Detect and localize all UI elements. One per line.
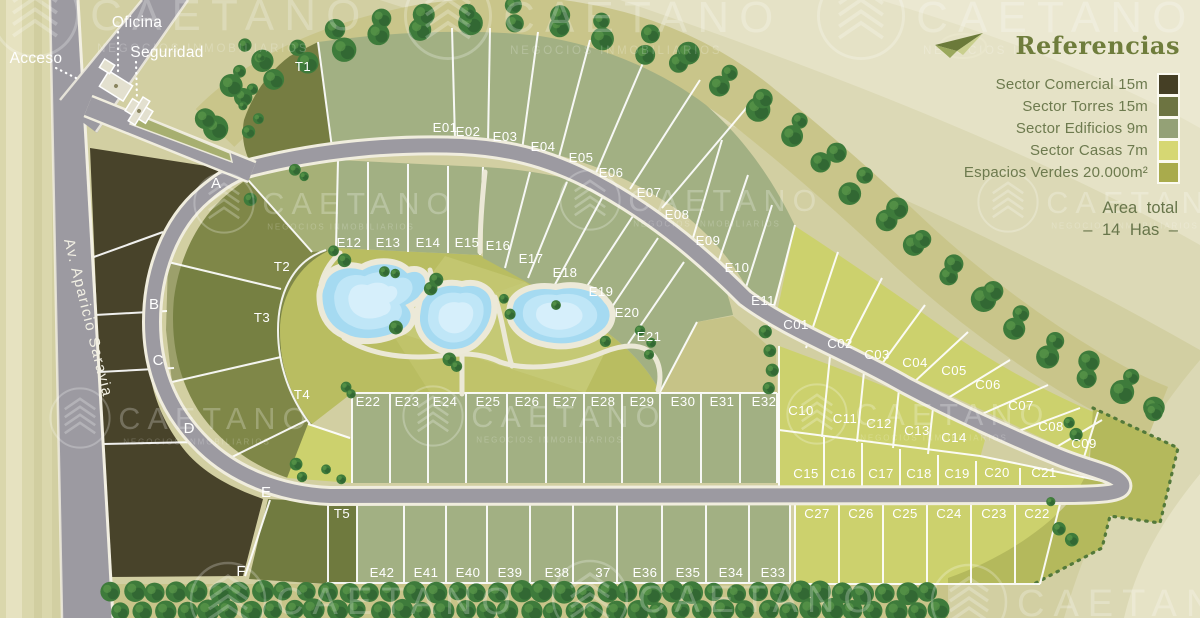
tree-icon	[297, 472, 307, 482]
legend-color-swatch	[1157, 117, 1180, 140]
legend-color-swatch	[1157, 95, 1180, 118]
lot-label-E01: E01	[433, 120, 458, 135]
lot-label-C20: C20	[984, 465, 1009, 480]
tree-icon	[379, 266, 390, 277]
tree-icon	[499, 294, 509, 304]
tree-icon	[290, 458, 303, 471]
tree-icon	[838, 182, 861, 205]
lot-label-E38: E38	[545, 565, 570, 580]
lot-label-E35: E35	[676, 565, 701, 580]
legend-item-4: Espacios Verdes 20.000m²	[910, 163, 1180, 182]
lot-label-T5: T5	[334, 506, 350, 521]
tree-icon	[1063, 417, 1074, 428]
lot-label-E32: E32	[752, 394, 777, 409]
lot-label-T2: T2	[274, 259, 290, 274]
tree-icon	[253, 113, 264, 124]
tree-icon	[233, 65, 246, 78]
legend-color-swatch	[1157, 161, 1180, 184]
lot-label-E42: E42	[370, 565, 395, 580]
lot-label-E31: E31	[710, 394, 735, 409]
area-total-line2: – 14 Has –	[910, 219, 1178, 241]
lot-label-T1: T1	[295, 59, 311, 74]
tree-icon	[299, 172, 308, 181]
watermark-subtext: NEGOCIOS INMOBILIARIOS	[510, 45, 722, 57]
watermark-text: CAETANO	[471, 400, 666, 434]
legend-color-swatch	[1157, 139, 1180, 162]
watermark-subtext: NEGOCIOS INMOBILIARIOS	[267, 222, 415, 231]
lot-label-C19: C19	[944, 466, 969, 481]
legend-item-label: Sector Casas 7m	[1030, 142, 1148, 159]
legend-item-label: Espacios Verdes 20.000m²	[964, 164, 1148, 181]
watermark-text: CAETANO	[628, 184, 823, 218]
lot-label-C24: C24	[936, 506, 961, 521]
tree-icon	[792, 113, 808, 129]
lot-label-E21: E21	[637, 329, 662, 344]
lot-label-E04: E04	[531, 139, 556, 154]
watermark-subtext: NEGOCIOS INMOBILIARIOS	[123, 437, 271, 446]
watermark-text: CAETANO	[262, 187, 457, 221]
lot-label-E: E	[261, 484, 271, 501]
watermark-text: CAETANO	[276, 581, 520, 618]
tree-icon	[238, 101, 247, 110]
legend-item-label: Sector Edificios 9m	[1016, 120, 1148, 137]
tree-icon	[1052, 522, 1066, 536]
lot-label-E36: E36	[633, 565, 658, 580]
lot-label-E05: E05	[569, 150, 594, 165]
tree-icon	[263, 69, 284, 90]
tree-icon	[897, 582, 920, 605]
tree-icon	[763, 344, 776, 357]
lot-label-E09: E09	[696, 233, 721, 248]
lot-label-C03: C03	[864, 347, 889, 362]
lot-label-C05: C05	[941, 363, 966, 378]
tree-icon	[763, 382, 775, 394]
north-arrow-icon	[930, 24, 994, 66]
legend-title: Referencias	[1016, 31, 1180, 60]
lot-label-C25: C25	[892, 506, 917, 521]
tree-icon	[338, 253, 352, 267]
lot-label-E39: E39	[498, 565, 523, 580]
tree-icon	[759, 325, 772, 338]
legend-area-total: Area total – 14 Has –	[910, 197, 1180, 242]
lot-label-E33: E33	[761, 565, 786, 580]
tree-icon	[1065, 533, 1079, 547]
lot-label-C22: C22	[1024, 506, 1049, 521]
legend: Referencias Sector Comercial 15mSector T…	[910, 24, 1180, 242]
legend-item-2: Sector Edificios 9m	[910, 119, 1180, 138]
tree-icon	[424, 282, 438, 296]
tree-icon	[247, 83, 258, 94]
lot-label-C27: C27	[804, 506, 829, 521]
tree-icon	[1046, 497, 1055, 506]
bg-left-strip-dark	[34, 0, 42, 618]
lot-label-C02: C02	[827, 336, 852, 351]
lot-label-E12: E12	[337, 235, 362, 250]
tree-icon	[827, 143, 847, 163]
legend-item-1: Sector Torres 15m	[910, 97, 1180, 116]
lot-label-E20: E20	[615, 305, 640, 320]
lot-label-E18: E18	[553, 265, 578, 280]
legend-item-label: Sector Comercial 15m	[996, 76, 1148, 93]
tree-icon	[451, 361, 462, 372]
lot-label-E30: E30	[671, 394, 696, 409]
lot-label-C06: C06	[975, 377, 1000, 392]
tree-icon	[244, 193, 257, 206]
watermark-text: CAETANO	[855, 398, 1050, 432]
tree-icon	[1145, 403, 1163, 421]
tree-icon	[346, 389, 355, 398]
lot-label-E16: E16	[486, 238, 511, 253]
tree-icon	[551, 300, 561, 310]
lot-label-C17: C17	[868, 466, 893, 481]
tree-icon	[321, 464, 331, 474]
tree-icon	[644, 349, 654, 359]
lot-label-E41: E41	[414, 565, 439, 580]
lot-label-E02: E02	[456, 124, 481, 139]
legend-color-swatch	[1157, 73, 1180, 96]
tree-icon	[505, 309, 516, 320]
tree-icon	[722, 65, 738, 81]
legend-item-0: Sector Comercial 15m	[910, 75, 1180, 94]
lot-label-C23: C23	[981, 506, 1006, 521]
lot-label-E03: E03	[493, 129, 518, 144]
tree-icon	[389, 320, 403, 334]
tree-icon	[332, 37, 356, 61]
lot-label-C09: C09	[1071, 436, 1096, 451]
tree-icon	[1123, 369, 1139, 385]
watermark-text: CAETANO	[118, 402, 313, 436]
tree-icon	[289, 164, 301, 176]
watermark-subtext: NEGOCIOS INMOBILIARIOS	[860, 433, 1008, 442]
legend-item-3: Sector Casas 7m	[910, 141, 1180, 160]
tree-icon	[195, 108, 216, 129]
lot-label-T3: T3	[254, 310, 270, 325]
lot-label-E22: E22	[356, 394, 381, 409]
tree-icon	[144, 583, 164, 603]
tree-icon	[856, 167, 873, 184]
lot-label-C04: C04	[902, 355, 927, 370]
tree-icon	[530, 580, 553, 603]
tree-icon	[1078, 351, 1099, 372]
lot-label-E19: E19	[589, 284, 614, 299]
lot-label-E13: E13	[376, 235, 401, 250]
tree-icon	[390, 269, 400, 279]
lot-label-E11: E11	[751, 293, 775, 308]
tree-icon	[242, 125, 255, 138]
tree-icon	[124, 580, 146, 602]
watermark-text: CAETANO	[1017, 583, 1200, 618]
lot-label-C26: C26	[848, 506, 873, 521]
lot-label-E10: E10	[725, 260, 750, 275]
watermark-subtext: NEGOCIOS INMOBILIARIOS	[633, 219, 781, 228]
area-total-line1: Area total	[910, 197, 1178, 219]
lot-label-C16: C16	[830, 466, 855, 481]
master-plan-map: T1E01E02E03E04E05E06E07E08E09E10E11E12E1…	[0, 0, 1200, 618]
lot-label-C15: C15	[793, 466, 818, 481]
lot-label-C01: C01	[783, 317, 808, 332]
tree-icon	[100, 582, 120, 602]
tree-icon	[372, 9, 392, 29]
tree-icon	[944, 254, 963, 273]
lot-label-E17: E17	[519, 251, 544, 266]
watermark-subtext: NEGOCIOS INMOBILIARIOS	[97, 43, 309, 55]
lot-label-B: B	[149, 296, 159, 313]
bg-left-strip-light	[6, 0, 22, 618]
lot-label-E34: E34	[719, 565, 744, 580]
lot-label-E40: E40	[456, 565, 481, 580]
watermark-text: CAETANO	[503, 0, 783, 42]
tree-icon	[600, 336, 611, 347]
legend-item-label: Sector Torres 15m	[1022, 98, 1148, 115]
watermark-text: CAETANO	[90, 0, 370, 40]
lot-label-C18: C18	[906, 466, 931, 481]
watermark-text: CAETANO	[638, 579, 882, 618]
tree-icon	[166, 581, 187, 602]
legend-items: Sector Comercial 15mSector Torres 15mSec…	[910, 75, 1180, 182]
lot-label-E14: E14	[416, 235, 441, 250]
lot-label-T4: T4	[294, 387, 310, 402]
tree-icon	[753, 89, 773, 109]
tree-icon	[886, 197, 908, 219]
tree-icon	[336, 474, 346, 484]
tree-icon	[1013, 305, 1030, 322]
tree-icon	[983, 281, 1003, 301]
tree-icon	[1046, 332, 1064, 350]
tree-icon	[766, 364, 779, 377]
watermark-subtext: NEGOCIOS INMOBILIARIOS	[476, 435, 624, 444]
lot-label-E15: E15	[455, 235, 480, 250]
lot-label-C21: C21	[1031, 465, 1056, 480]
lot-label-C: C	[153, 352, 164, 369]
